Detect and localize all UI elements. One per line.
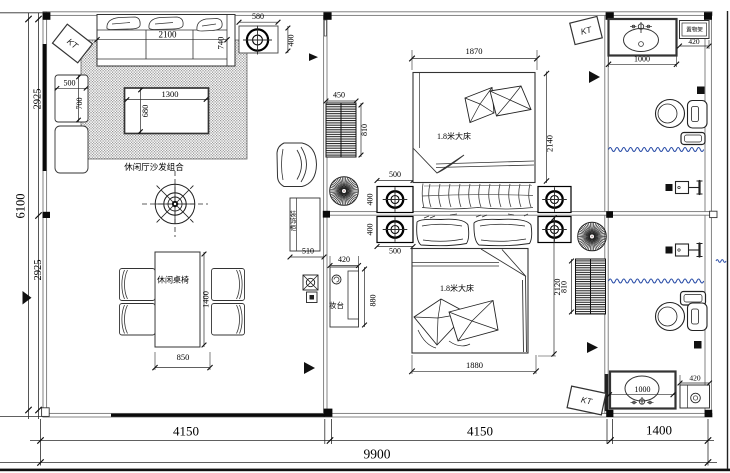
svg-text:置物架: 置物架 [686, 26, 703, 34]
svg-text:休闲厅沙发组合: 休闲厅沙发组合 [124, 162, 184, 172]
svg-text:1000: 1000 [634, 55, 650, 64]
svg-text:850: 850 [177, 352, 190, 362]
svg-text:1400: 1400 [201, 291, 211, 308]
svg-text:810: 810 [560, 281, 569, 293]
svg-text:500: 500 [389, 170, 401, 179]
svg-text:880: 880 [369, 295, 378, 307]
svg-text:700: 700 [75, 98, 84, 110]
svg-text:2925: 2925 [33, 260, 44, 281]
svg-text:450: 450 [333, 91, 345, 100]
svg-text:妆台: 妆台 [329, 300, 344, 310]
svg-text:2925: 2925 [33, 89, 44, 110]
svg-text:1.8米大床: 1.8米大床 [437, 131, 471, 141]
svg-text:休闲桌椅: 休闲桌椅 [157, 275, 189, 285]
svg-text:2140: 2140 [545, 135, 555, 152]
svg-text:680: 680 [140, 105, 150, 118]
svg-text:400: 400 [287, 35, 296, 47]
svg-text:4150: 4150 [467, 424, 493, 439]
svg-text:1400: 1400 [646, 423, 672, 438]
svg-text:400: 400 [366, 194, 375, 206]
svg-text:500: 500 [64, 79, 76, 88]
svg-text:580: 580 [252, 12, 264, 21]
svg-text:420: 420 [688, 37, 700, 46]
svg-text:2100: 2100 [159, 30, 178, 40]
svg-text:4150: 4150 [173, 424, 199, 439]
svg-text:420: 420 [689, 374, 701, 383]
svg-text:1880: 1880 [466, 360, 483, 370]
svg-text:510: 510 [302, 247, 314, 256]
svg-text:1870: 1870 [466, 46, 483, 56]
svg-text:1000: 1000 [635, 385, 651, 394]
svg-text:1.8米大床: 1.8米大床 [440, 283, 474, 293]
svg-text:400: 400 [366, 224, 375, 236]
svg-text:420: 420 [338, 255, 350, 264]
svg-text:1300: 1300 [162, 89, 179, 99]
svg-text:装饰柜: 装饰柜 [290, 209, 297, 232]
svg-text:810: 810 [360, 124, 369, 136]
svg-text:9900: 9900 [364, 447, 391, 462]
svg-text:500: 500 [389, 247, 401, 256]
svg-text:6100: 6100 [14, 194, 28, 219]
svg-text:740: 740 [216, 37, 226, 50]
